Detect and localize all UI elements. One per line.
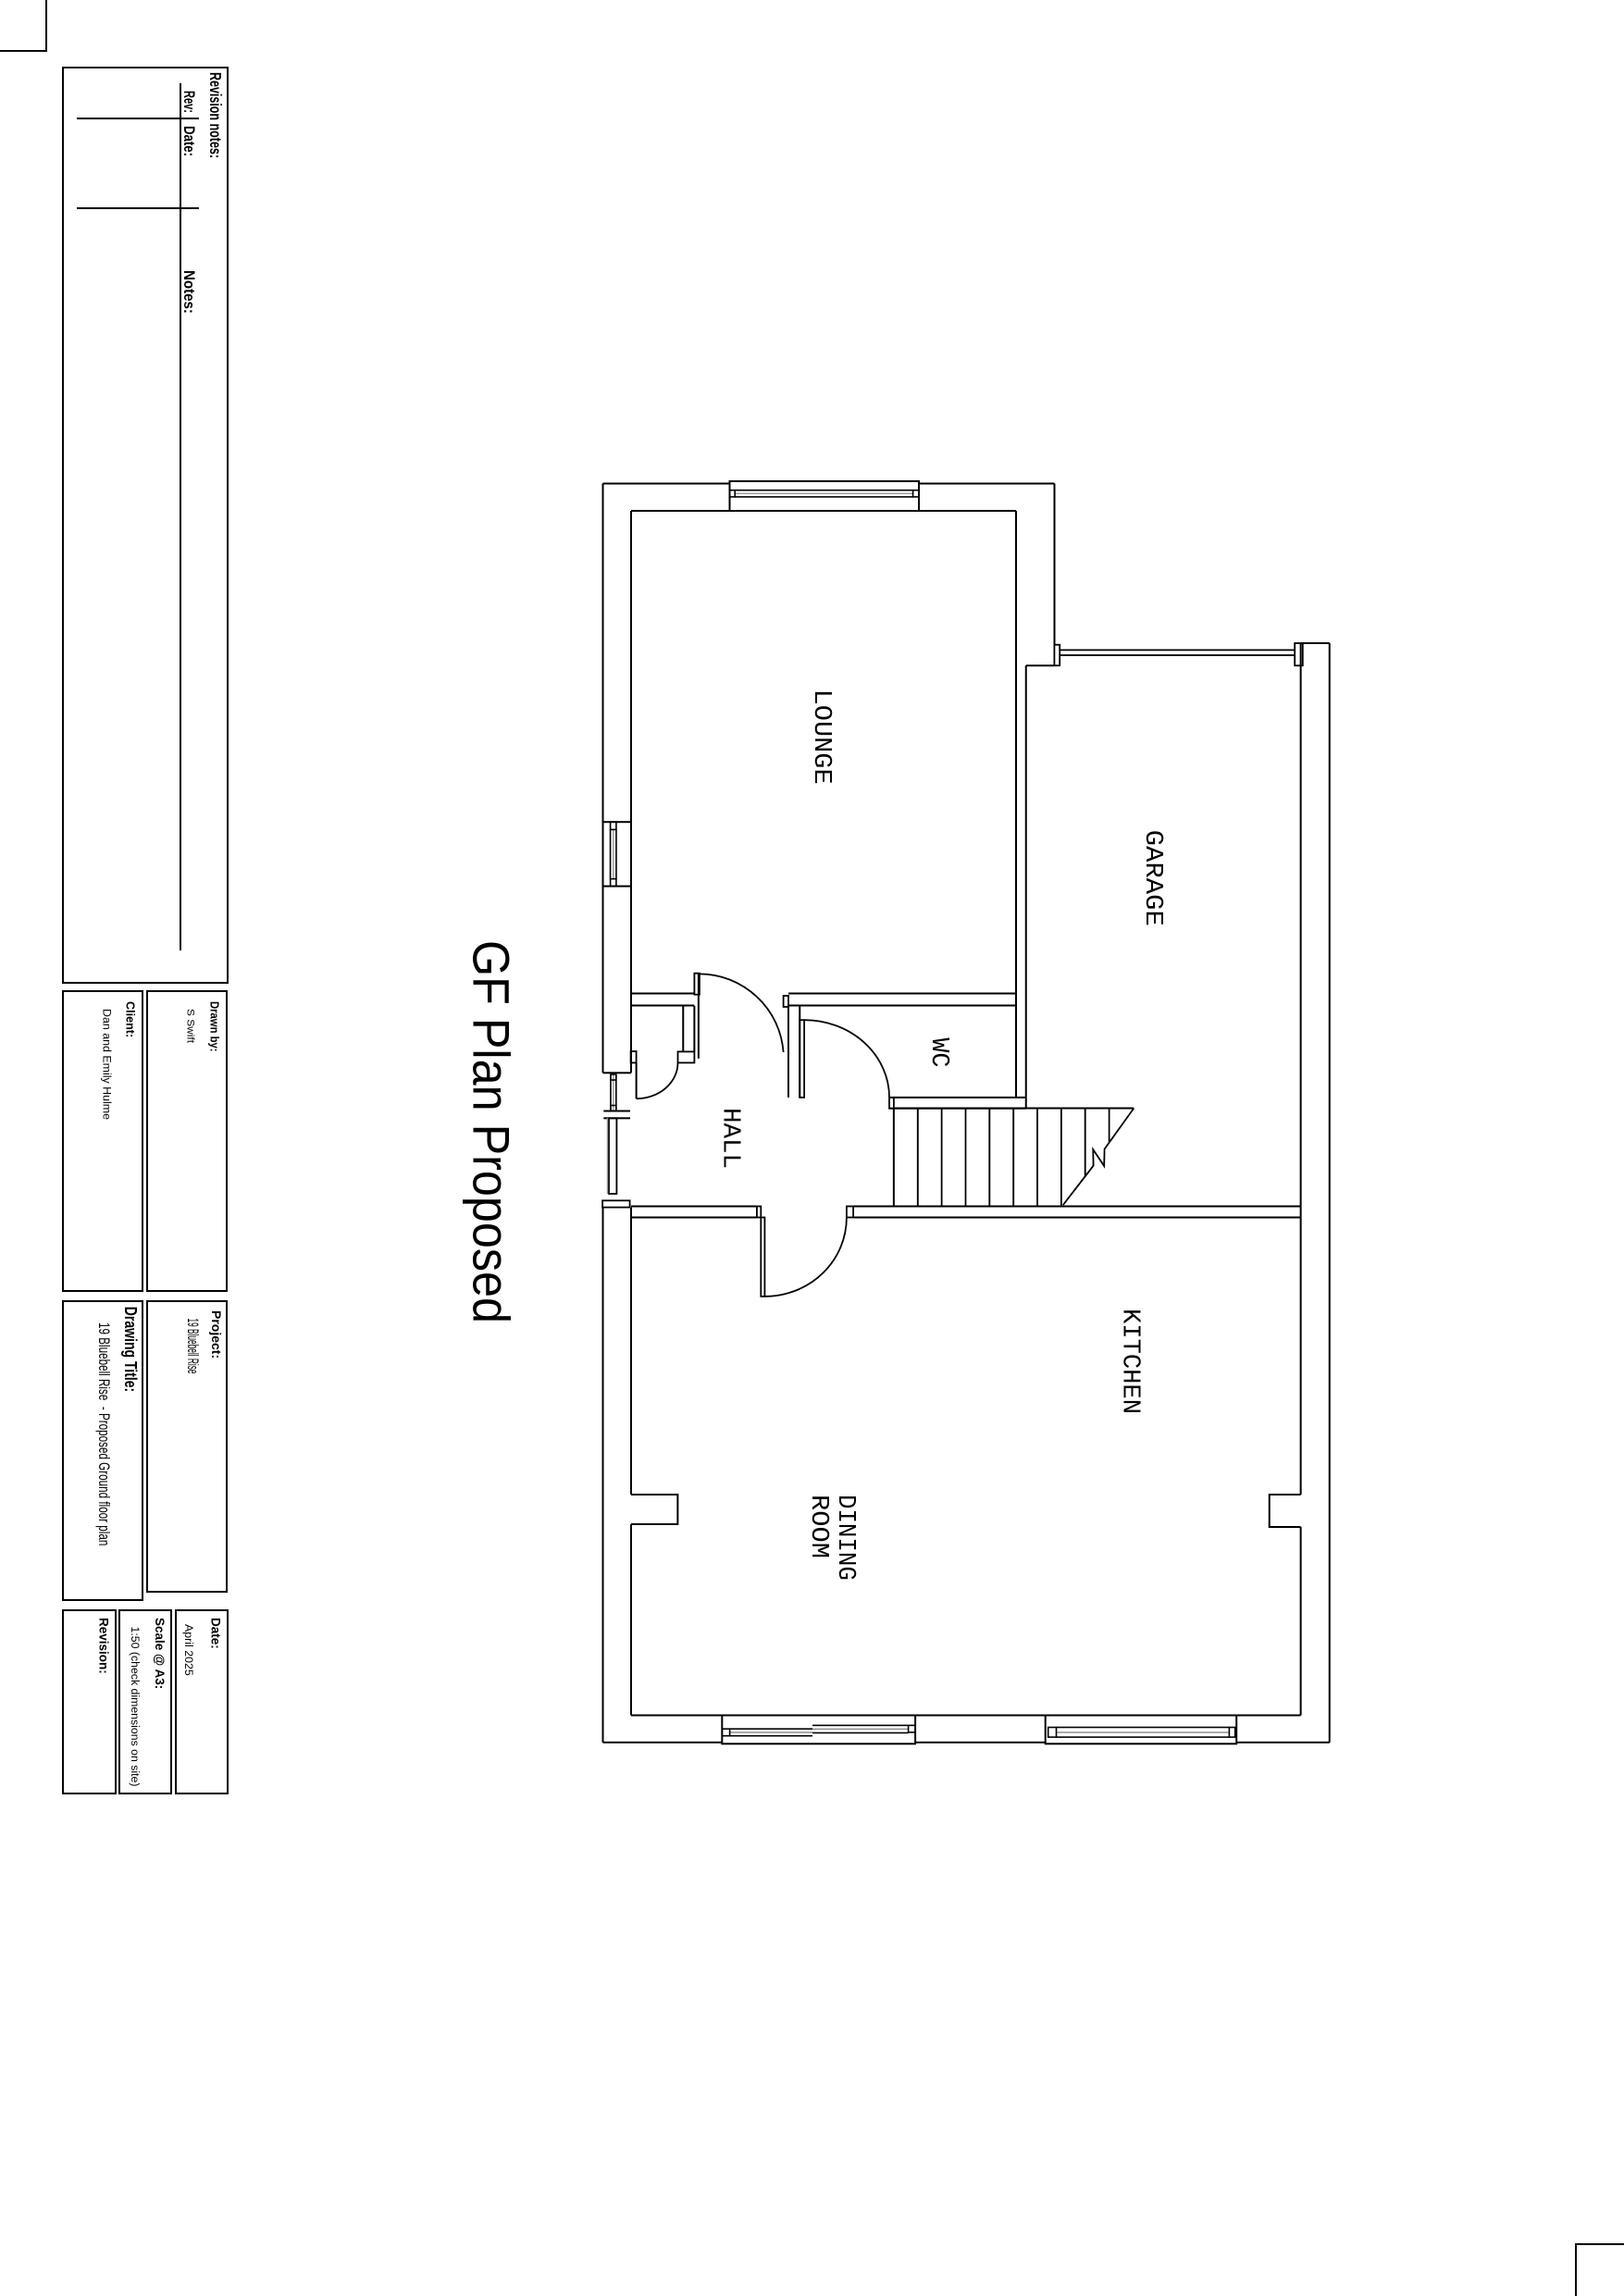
svg-text:1:50 (check dimensions on site: 1:50 (check dimensions on site) xyxy=(129,1627,142,1787)
svg-text:KITCHEN: KITCHEN xyxy=(1116,1309,1144,1414)
svg-text:DINING: DINING xyxy=(831,1495,859,1581)
svg-text:WC: WC xyxy=(924,1037,952,1067)
svg-text:HALL: HALL xyxy=(716,1108,744,1169)
svg-text:LOUNGE: LOUNGE xyxy=(807,689,835,785)
svg-text:Client:: Client: xyxy=(124,1001,137,1037)
svg-text:Revision notes:: Revision notes: xyxy=(205,72,223,158)
svg-text:Rev:: Rev: xyxy=(180,91,197,113)
svg-text:Drawn by:: Drawn by: xyxy=(208,1001,221,1052)
svg-text:Revision:: Revision: xyxy=(97,1618,111,1674)
svg-text:19 Bluebell Rise: 19 Bluebell Rise xyxy=(184,1319,201,1374)
svg-text:Drawing Title:: Drawing Title: xyxy=(121,1307,141,1392)
svg-text:Notes:: Notes: xyxy=(180,270,197,314)
svg-text:19 Bluebell Rise - Proposed G: 19 Bluebell Rise - Proposed Ground floor… xyxy=(95,1322,112,1545)
svg-text:Project:: Project: xyxy=(209,1310,224,1359)
svg-text:ROOM: ROOM xyxy=(804,1495,832,1558)
svg-text:GF Plan Proposed: GF Plan Proposed xyxy=(463,940,521,1323)
svg-text:GARAGE: GARAGE xyxy=(1138,830,1166,926)
svg-text:Date:: Date: xyxy=(209,1618,223,1649)
svg-text:April 2025: April 2025 xyxy=(182,1624,195,1676)
svg-text:Date:: Date: xyxy=(180,126,197,156)
svg-text:Scale @ A3:: Scale @ A3: xyxy=(153,1618,167,1689)
svg-text:Dan and Emily Hulme: Dan and Emily Hulme xyxy=(101,1009,112,1120)
svg-text:S Swift: S Swift xyxy=(185,1009,196,1043)
